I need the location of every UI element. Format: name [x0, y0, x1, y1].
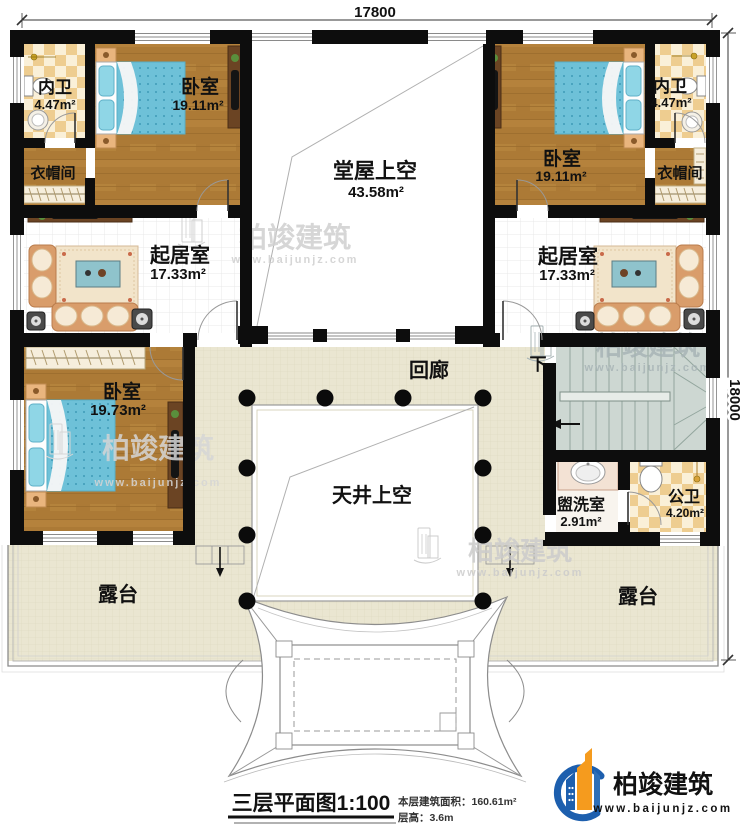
brand-name: 柏竣建筑 [613, 770, 713, 799]
watermark-url: www.baijunjz.com [584, 362, 712, 374]
label-terrace-left: 露台 [98, 582, 138, 606]
label-washroom-area: 2.91m² [560, 514, 602, 529]
label-hall-void: 堂屋上空 [333, 159, 417, 183]
label-cloakroom-left: 衣帽间 [30, 164, 75, 182]
label-bath-top-right: 内卫 [653, 76, 687, 96]
dimension-right-label: 18000 [726, 379, 743, 421]
watermark-text: 柏竣建筑 [239, 221, 351, 253]
label-stair-down: 下 [530, 355, 547, 374]
label-living-left: 起居室 [149, 243, 210, 267]
label-bedroom-bottom-left: 卧室 [103, 380, 141, 403]
hall-front-glazing [268, 331, 455, 341]
toilet-icon [24, 76, 33, 96]
porch-roof [224, 597, 526, 782]
label-bedroom-bottom-left-area: 19.73m² [90, 402, 146, 419]
cloakroom-left-rack [24, 186, 85, 203]
floor-height-line: 层高：3.6m [398, 811, 453, 824]
toilet-icon [697, 76, 706, 96]
label-bedroom-top-right-area: 19.11m² [535, 168, 587, 184]
label-washroom: 盥洗室 [557, 495, 605, 514]
floor-plan-canvas: 柏竣建筑 www.baijunjz.com 柏竣建筑 www.baijunjz.… [0, 0, 750, 833]
label-public-bath: 公卫 [668, 488, 700, 506]
label-living-right-area: 17.33m² [539, 267, 595, 284]
plan-title: 三层平面图1:100 [232, 792, 391, 815]
watermark-url: www.baijunjz.com [94, 477, 222, 489]
plant-icon [171, 410, 179, 418]
label-hall-void-area: 43.58m² [348, 184, 404, 201]
watermark-url: www.baijunjz.com [456, 567, 584, 579]
label-terrace-right: 露台 [618, 584, 658, 608]
bed-top-right [555, 48, 644, 148]
label-bath-top-right-area: 4.47m² [650, 95, 692, 110]
label-living-left-area: 17.33m² [150, 266, 206, 283]
label-bedroom-top-left: 卧室 [181, 75, 219, 98]
label-public-bath-area: 4.20m² [666, 506, 704, 520]
coffee-table [612, 261, 656, 287]
dimension-top: 17800 [17, 4, 717, 28]
dimension-top-label: 17800 [354, 4, 396, 21]
brand-logo: 柏竣建筑 www.baijunjz.com [557, 748, 732, 818]
label-bath-top-left: 内卫 [38, 77, 72, 97]
watermark-text: 柏竣建筑 [102, 432, 214, 464]
built-area-line: 本层建筑面积：160.61m² [398, 795, 517, 808]
label-bath-top-left-area: 4.47m² [34, 97, 76, 112]
coffee-table [76, 261, 120, 287]
label-courtyard-void: 天井上空 [332, 483, 412, 507]
title-block: 三层平面图1:100 本层建筑面积：160.61m² 层高：3.6m [228, 792, 517, 824]
label-cloakroom-right: 衣帽间 [657, 164, 702, 182]
label-corridor: 回廊 [409, 358, 449, 382]
floor-plan-sheet: 柏竣建筑 www.baijunjz.com 柏竣建筑 www.baijunjz.… [0, 0, 750, 833]
brand-website: www.baijunjz.com [592, 803, 732, 815]
label-bedroom-top-right: 卧室 [543, 147, 581, 170]
stair-handrail [560, 392, 670, 401]
label-bedroom-top-left-area: 19.11m² [172, 97, 224, 113]
label-living-right: 起居室 [537, 244, 598, 268]
